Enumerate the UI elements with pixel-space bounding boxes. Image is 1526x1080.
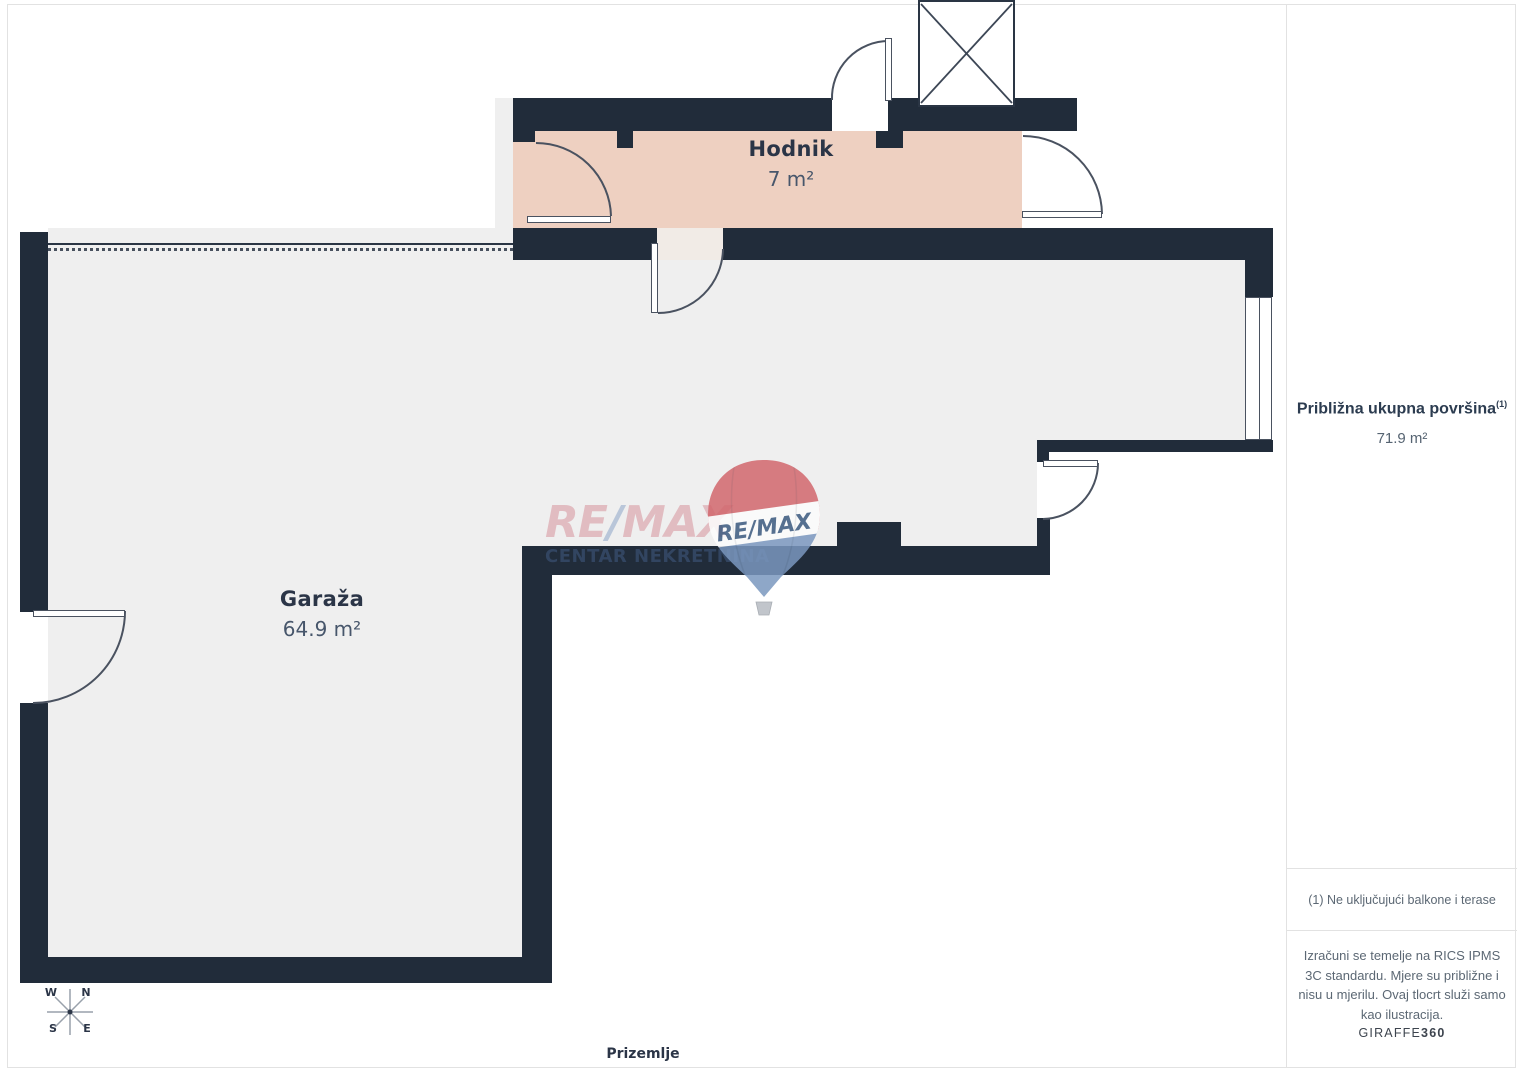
door-leaf bbox=[1043, 460, 1098, 467]
wall-segment bbox=[723, 228, 1273, 260]
garage-floor-middle bbox=[522, 260, 1037, 546]
door-leaf bbox=[33, 610, 125, 617]
total-area-value: 71.9 m² bbox=[1287, 430, 1517, 447]
floor-label: Prizemlje bbox=[0, 1046, 1286, 1062]
garage-door-line bbox=[48, 243, 513, 245]
elevator-shaft bbox=[918, 0, 1015, 107]
wall-segment bbox=[513, 131, 535, 142]
wall-segment bbox=[1037, 518, 1050, 546]
room-label-hodnik: Hodnik 7 m² bbox=[691, 137, 891, 191]
garage-floor-right bbox=[1037, 260, 1245, 440]
wall-pier bbox=[617, 131, 633, 148]
floorplan-page: W N S E Hodnik 7 m² Garaža 64.9 m² Prize… bbox=[0, 0, 1526, 1080]
giraffe360-logo: GIRAFFE360 bbox=[1287, 1026, 1517, 1040]
disclaimer-text: Izračuni se temelje na RICS IPMS 3C stan… bbox=[1294, 946, 1510, 1024]
room-name: Garaža bbox=[222, 587, 422, 611]
wall-segment bbox=[20, 232, 48, 612]
wall-segment bbox=[1037, 440, 1273, 452]
room-label-garaza: Garaža 64.9 m² bbox=[222, 587, 422, 641]
wall-segment bbox=[513, 228, 657, 260]
total-area-label: Približna ukupna površina(1) bbox=[1287, 399, 1517, 418]
wall-segment bbox=[20, 957, 552, 983]
wall-segment bbox=[522, 546, 1050, 575]
exterior-strip bbox=[495, 98, 513, 244]
footnote-marker: (1) bbox=[1496, 399, 1507, 409]
wall-segment bbox=[20, 703, 48, 957]
wall-pillar bbox=[837, 522, 901, 548]
window bbox=[1245, 297, 1272, 440]
wall-segment bbox=[513, 98, 832, 131]
room-area: 7 m² bbox=[691, 167, 891, 191]
door-threshold bbox=[657, 228, 723, 260]
room-name: Hodnik bbox=[691, 137, 891, 161]
garage-door-dotted-line bbox=[48, 248, 513, 251]
info-sidebar: Približna ukupna površina(1) 71.9 m² (1)… bbox=[1287, 4, 1517, 1068]
door-leaf bbox=[527, 216, 611, 223]
room-area: 64.9 m² bbox=[222, 617, 422, 641]
wall-segment bbox=[522, 575, 552, 983]
door-leaf bbox=[651, 243, 658, 313]
door-leaf bbox=[1022, 211, 1102, 218]
wall-segment bbox=[1245, 260, 1273, 297]
footnote-text: (1) Ne uključujući balkone i terase bbox=[1287, 893, 1517, 907]
door-leaf bbox=[885, 38, 892, 101]
